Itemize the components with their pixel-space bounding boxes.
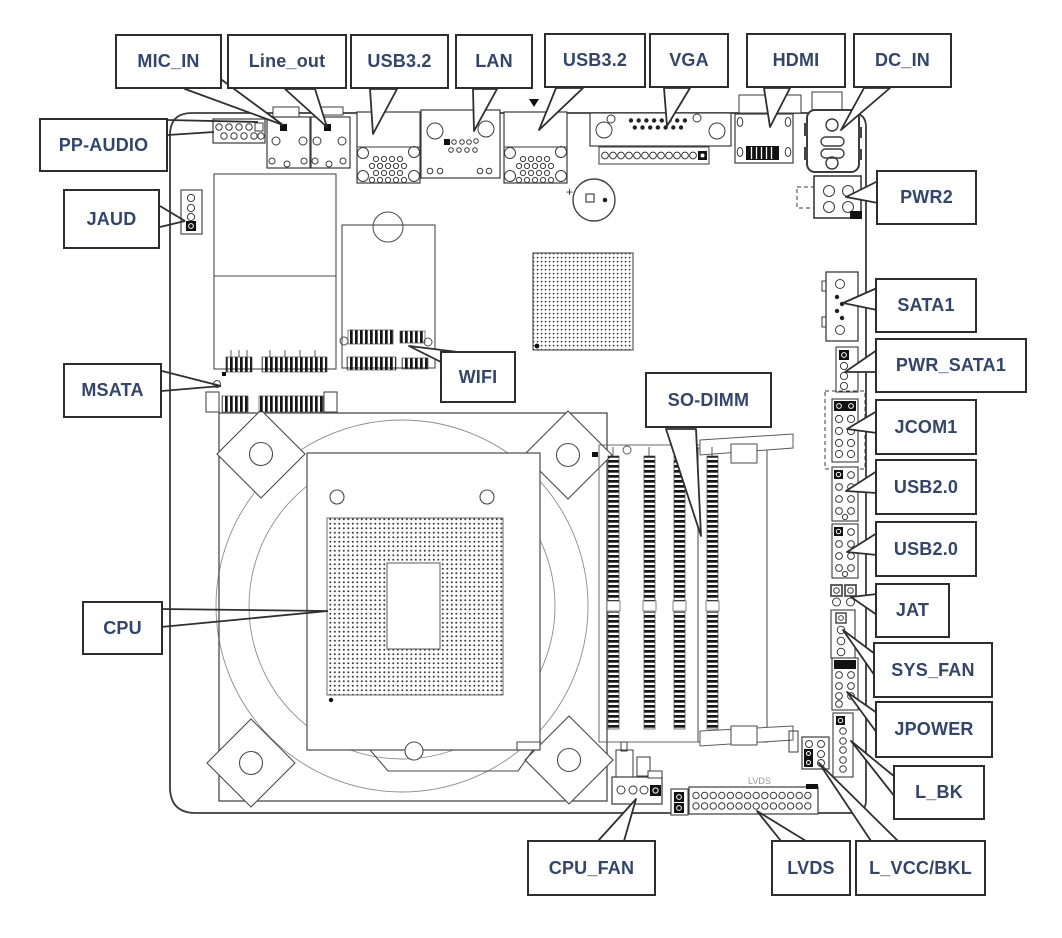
cpu-fan-header — [612, 742, 662, 804]
callout-sys-fan: SYS_FAN — [873, 642, 993, 698]
callout-pwr-sata1: PWR_SATA1 — [875, 338, 1027, 393]
callout-jpower: JPOWER — [875, 701, 993, 758]
callout-dc-in: DC_IN — [853, 33, 952, 88]
cpu-die — [387, 563, 440, 649]
callout-line-out: Line_out — [227, 34, 347, 89]
callout-lvds: LVDS — [771, 840, 851, 896]
callout-mic-in: MIC_IN — [115, 34, 222, 89]
usb32-port-b — [504, 112, 567, 183]
lvcc-bkl-header — [789, 731, 829, 769]
sys-fan-header — [831, 610, 855, 658]
audio-jacks — [267, 107, 350, 168]
sata1-connector — [822, 272, 858, 341]
motherboard-diagram: + — [0, 0, 1062, 938]
callout-hdmi: HDMI — [746, 33, 846, 88]
callout-vga: VGA — [649, 33, 729, 88]
callout-sata1: SATA1 — [875, 278, 977, 333]
msata-slot — [206, 174, 337, 412]
usb32-port-a — [357, 112, 420, 183]
callout-cpu: CPU — [82, 601, 163, 655]
callout-lan: LAN — [455, 34, 533, 89]
callout-usb20-a: USB2.0 — [875, 459, 977, 515]
dc-in-jack — [804, 92, 862, 172]
battery-plus-mark: + — [566, 185, 573, 199]
callout-pp-audio: PP-AUDIO — [39, 118, 168, 172]
vga-port — [590, 113, 731, 164]
callout-l-bk: L_BK — [893, 765, 985, 820]
top-edge-marker — [529, 99, 539, 107]
lvds-silkscreen-text: LVDS — [748, 776, 771, 786]
lvds-connector: LVDS — [671, 776, 818, 815]
wifi-module — [340, 212, 435, 370]
lbk-header — [833, 713, 853, 777]
callout-usb32-a: USB3.2 — [350, 34, 449, 89]
chipset-bga — [533, 253, 633, 350]
callout-jcom1: JCOM1 — [875, 399, 977, 455]
callout-usb32-b: USB3.2 — [544, 33, 646, 88]
callout-usb20-b: USB2.0 — [875, 521, 977, 577]
usb20-header-a — [832, 467, 858, 521]
battery: + — [566, 179, 615, 221]
callout-cpu-fan: CPU_FAN — [527, 840, 656, 896]
callout-jat: JAT — [875, 583, 950, 638]
jaud-header — [181, 190, 202, 234]
callout-so-dimm: SO-DIMM — [645, 372, 772, 428]
cpu-socket-area — [207, 410, 613, 807]
callout-pwr2: PWR2 — [876, 170, 977, 225]
jat-header — [831, 585, 856, 606]
callout-l-vcc-bkl: L_VCC/BKL — [855, 840, 986, 896]
lan-port — [421, 110, 500, 178]
callout-msata: MSATA — [63, 363, 162, 418]
callout-wifi: WIFI — [440, 351, 516, 403]
callout-jaud: JAUD — [63, 189, 160, 249]
